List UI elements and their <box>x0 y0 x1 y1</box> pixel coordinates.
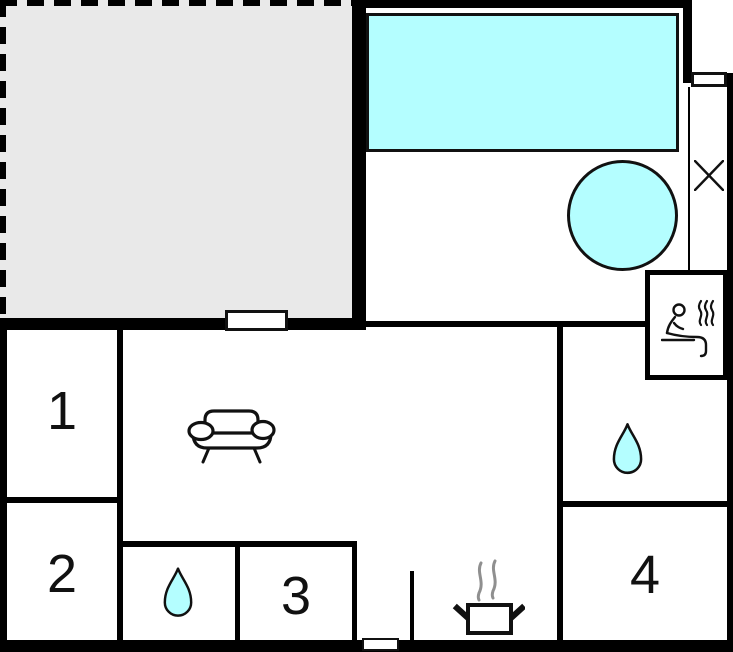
entry-window-opening <box>691 72 727 87</box>
wall-entry-corridor-left <box>688 87 690 270</box>
room-4-label: 4 <box>563 548 727 602</box>
water-drop-icon <box>611 421 644 480</box>
sofa-icon <box>185 400 280 465</box>
wall-terrace-right <box>352 0 366 330</box>
terrace-dashed-border-left <box>0 0 6 326</box>
wall-divider-room1-room2 <box>0 497 123 503</box>
room-2-label: 2 <box>7 547 117 601</box>
wall-pool-room-bottom <box>366 321 645 327</box>
cross-icon <box>694 160 724 191</box>
cooking-pot-steam-icon <box>445 553 525 641</box>
terrace-door-opening <box>225 310 288 331</box>
wall-pool-room-top <box>352 0 691 8</box>
wall-terrace-bottom <box>0 318 366 330</box>
floor-plan: 1 2 3 4 <box>0 0 733 652</box>
room-1-label: 1 <box>7 384 117 438</box>
wall-pool-room-right <box>683 0 692 78</box>
terrace-area <box>0 0 352 330</box>
sauna-person-steam-icon <box>661 297 723 361</box>
room-3-label: 3 <box>240 569 352 623</box>
wall-outer-left <box>0 318 7 652</box>
swimming-pool <box>366 13 679 152</box>
water-drop-icon <box>162 566 194 622</box>
wall-bedrooms-right <box>117 321 123 640</box>
wall-bottom-block-right <box>352 541 357 645</box>
wall-divider-bath-room4 <box>557 501 733 507</box>
sauna-room <box>645 270 728 380</box>
bottom-door-opening <box>362 638 399 651</box>
hot-tub <box>567 160 678 271</box>
wall-kitchen-stub <box>410 571 414 640</box>
terrace-dashed-border-top <box>0 0 358 6</box>
